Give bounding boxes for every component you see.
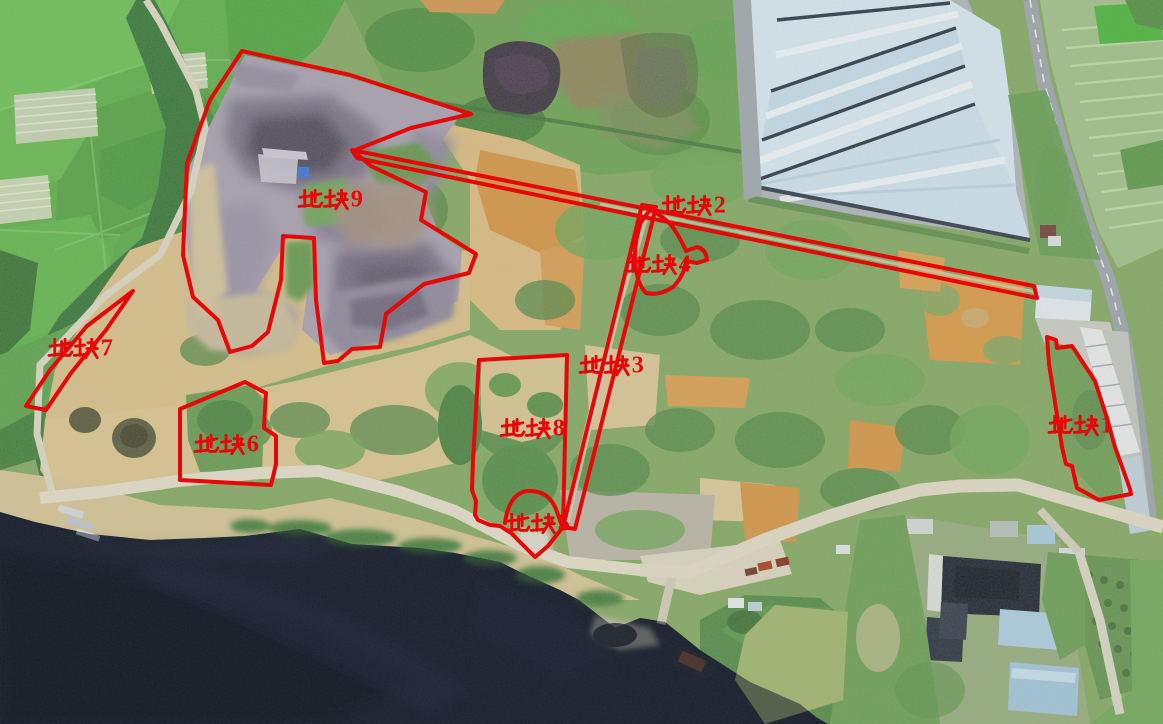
svg-text:5: 5: [558, 509, 570, 536]
svg-text:8: 8: [553, 414, 565, 441]
svg-text:4: 4: [679, 250, 691, 277]
svg-text:3: 3: [632, 351, 644, 378]
svg-text:7: 7: [101, 334, 113, 361]
svg-text:9: 9: [351, 185, 363, 212]
svg-text:2: 2: [714, 191, 726, 218]
svg-text:6: 6: [247, 430, 259, 457]
svg-text:1: 1: [1101, 411, 1113, 438]
